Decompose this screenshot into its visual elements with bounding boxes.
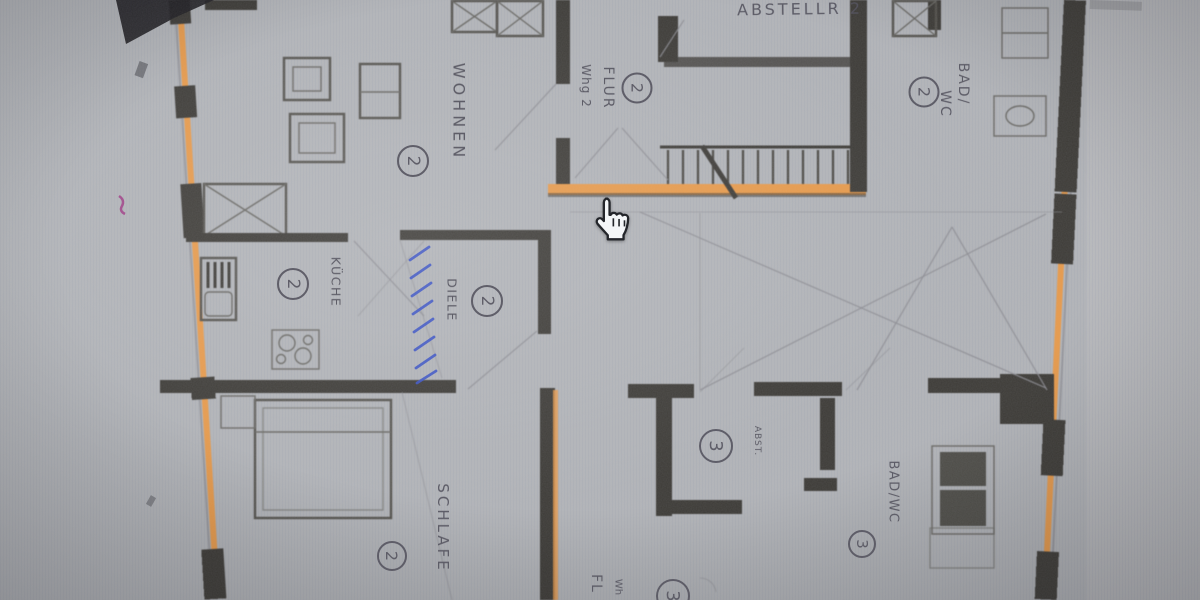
- floorplan-drawing: [0, 0, 1200, 600]
- photo-vignette: [0, 0, 1200, 600]
- floorplan-photo[interactable]: ABSTELLR 2 Whg 2 FLUR 2 BAD/ WC 2 WOHNEN…: [0, 0, 1200, 600]
